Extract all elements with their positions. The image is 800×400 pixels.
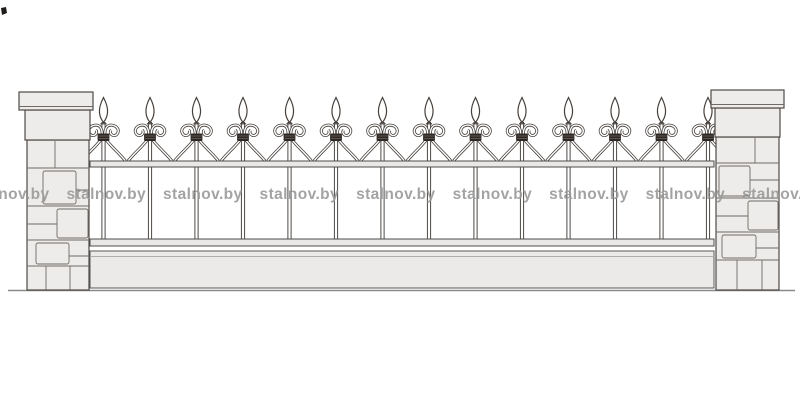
right-pillar-frieze [715, 108, 780, 137]
right-pillar-cap [711, 90, 784, 108]
fence-panel [82, 98, 731, 240]
fence-picket [361, 98, 405, 240]
fence-picket [268, 98, 312, 240]
fence-picket [314, 98, 358, 240]
bottom-rail [90, 239, 714, 246]
fence-picket [407, 98, 451, 240]
corner-speck [1, 7, 7, 15]
fence-picket [221, 98, 265, 240]
left-pillar-frieze [25, 110, 90, 140]
left-pillar-body [27, 140, 89, 290]
fence-picket [547, 98, 591, 240]
fence-picket [593, 98, 637, 240]
fence-picket [454, 98, 498, 240]
fence-drawing-canvas: stalnov.by stalnov.by stalnov.by stalnov… [0, 0, 800, 400]
left-pillar [19, 92, 93, 290]
fence-picket [640, 98, 684, 240]
fence-picket [175, 98, 219, 240]
fence-elevation-drawing [0, 0, 800, 400]
top-rail [90, 161, 714, 167]
fence-picket [500, 98, 544, 240]
fence-picket [128, 98, 172, 240]
right-pillar [711, 90, 784, 290]
fence-rails [90, 161, 714, 288]
left-pillar-cap [19, 92, 93, 110]
right-pillar-body [716, 137, 779, 290]
